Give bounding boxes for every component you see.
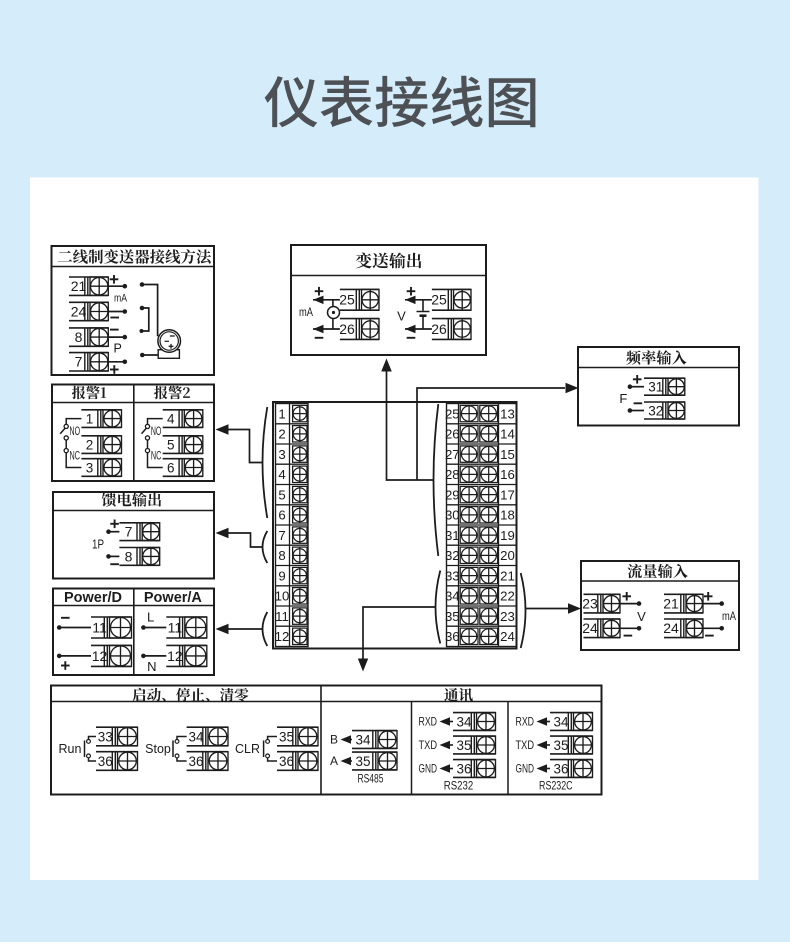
svg-text:26: 26 [445, 427, 460, 442]
svg-text:5: 5 [167, 437, 175, 452]
svg-text:1: 1 [278, 406, 285, 421]
svg-text:36: 36 [553, 761, 568, 776]
svg-text:RXD: RXD [516, 715, 535, 729]
svg-text:25: 25 [431, 292, 447, 308]
svg-text:24: 24 [71, 303, 87, 319]
svg-text:12: 12 [92, 648, 108, 664]
svg-text:24: 24 [582, 620, 598, 636]
svg-text:31: 31 [445, 528, 460, 543]
svg-text:14: 14 [500, 427, 515, 442]
svg-text:RS485: RS485 [358, 772, 384, 786]
svg-text:15: 15 [500, 447, 515, 462]
svg-text:34: 34 [188, 729, 204, 744]
svg-text:17: 17 [500, 487, 515, 502]
svg-text:TXD: TXD [516, 738, 535, 752]
svg-text:GND: GND [419, 762, 438, 776]
svg-text:RS232: RS232 [444, 779, 474, 793]
svg-text:26: 26 [431, 321, 447, 337]
svg-text:CLR: CLR [235, 742, 260, 756]
svg-text:7: 7 [278, 528, 285, 543]
svg-text:NO: NO [151, 426, 162, 438]
svg-text:Power/D: Power/D [64, 590, 122, 606]
svg-text:21: 21 [500, 568, 515, 583]
svg-text:19: 19 [500, 528, 515, 543]
svg-text:33: 33 [445, 568, 460, 583]
svg-text:RXD: RXD [419, 715, 438, 729]
svg-text:24: 24 [500, 629, 515, 644]
svg-text:32: 32 [648, 403, 663, 418]
svg-text:TXD: TXD [419, 738, 438, 752]
svg-text:25: 25 [339, 292, 355, 308]
svg-text:11: 11 [275, 609, 289, 624]
svg-text:35: 35 [553, 738, 568, 753]
svg-text:36: 36 [445, 629, 460, 644]
svg-text:31: 31 [648, 380, 663, 395]
svg-text:3: 3 [278, 447, 285, 462]
svg-text:36: 36 [188, 754, 203, 769]
svg-text:2: 2 [278, 427, 285, 442]
svg-text:35: 35 [456, 738, 471, 753]
svg-text:21: 21 [71, 278, 87, 294]
svg-text:12: 12 [275, 629, 290, 644]
svg-text:V: V [397, 308, 406, 323]
svg-text:21: 21 [663, 596, 679, 612]
svg-text:8: 8 [125, 548, 133, 564]
svg-text:Run: Run [59, 742, 82, 756]
svg-text:9: 9 [278, 568, 285, 583]
svg-text:32: 32 [445, 548, 460, 563]
svg-text:7: 7 [75, 354, 83, 370]
svg-text:11: 11 [168, 619, 183, 635]
svg-text:5: 5 [278, 487, 285, 502]
svg-text:6: 6 [167, 460, 175, 475]
svg-text:mA: mA [299, 305, 313, 319]
svg-text:35: 35 [355, 754, 370, 769]
svg-text:22: 22 [500, 589, 515, 604]
svg-text:RS232C: RS232C [539, 779, 573, 793]
svg-text:36: 36 [279, 754, 294, 769]
svg-text:30: 30 [445, 508, 460, 523]
svg-text:L: L [147, 609, 154, 624]
svg-text:34: 34 [456, 714, 472, 729]
svg-text:6: 6 [278, 508, 285, 523]
svg-text:18: 18 [500, 508, 515, 523]
svg-text:1: 1 [86, 411, 94, 426]
svg-text:NO: NO [70, 426, 81, 438]
svg-text:36: 36 [456, 761, 471, 776]
svg-text:Stop: Stop [145, 742, 171, 756]
svg-text:29: 29 [445, 487, 460, 502]
svg-text:P: P [114, 341, 122, 355]
svg-text:13: 13 [500, 406, 515, 421]
svg-text:NC: NC [70, 450, 81, 462]
svg-text:23: 23 [582, 596, 598, 612]
svg-text:mA: mA [722, 609, 736, 623]
svg-text:26: 26 [339, 321, 355, 337]
svg-text:36: 36 [98, 754, 113, 769]
svg-text:GND: GND [516, 762, 535, 776]
svg-text:34: 34 [553, 714, 569, 729]
svg-text:11: 11 [92, 619, 107, 635]
svg-text:16: 16 [500, 467, 515, 482]
svg-text:28: 28 [445, 467, 460, 482]
svg-text:mA: mA [114, 292, 128, 304]
svg-text:12: 12 [167, 648, 183, 664]
svg-text:V: V [637, 609, 646, 624]
svg-text:8: 8 [75, 329, 83, 345]
svg-text:20: 20 [500, 548, 515, 563]
svg-text:34: 34 [445, 589, 460, 604]
svg-text:35: 35 [445, 609, 460, 624]
svg-text:F: F [619, 391, 627, 406]
svg-text:3: 3 [86, 460, 94, 475]
svg-text:23: 23 [500, 609, 515, 624]
svg-text:27: 27 [445, 447, 460, 462]
svg-text:NC: NC [151, 450, 162, 462]
svg-text:34: 34 [355, 732, 371, 747]
svg-text:1P: 1P [92, 537, 104, 551]
svg-text:7: 7 [125, 524, 133, 540]
svg-text:35: 35 [279, 729, 294, 744]
svg-text:4: 4 [167, 411, 175, 426]
svg-text:2: 2 [86, 437, 94, 452]
svg-text:B: B [330, 733, 338, 747]
svg-text:24: 24 [663, 620, 679, 636]
svg-text:A: A [330, 754, 338, 768]
svg-text:8: 8 [278, 548, 285, 563]
svg-text:N: N [147, 659, 156, 674]
svg-text:10: 10 [275, 589, 290, 604]
svg-text:25: 25 [445, 406, 460, 421]
svg-text:33: 33 [98, 729, 113, 744]
svg-text:4: 4 [278, 467, 285, 482]
svg-text:Power/A: Power/A [144, 590, 203, 606]
